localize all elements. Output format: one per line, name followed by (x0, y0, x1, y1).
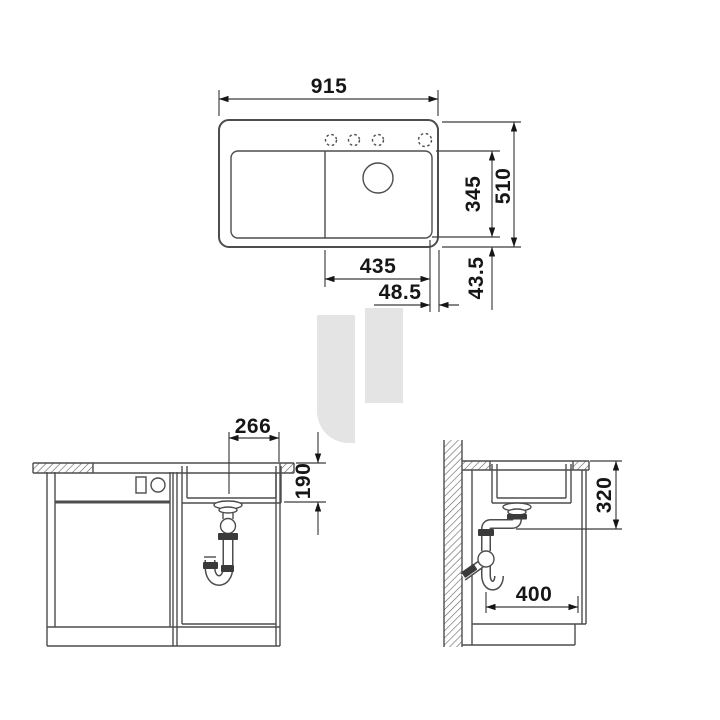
dim-rim-offset-vertical: 43.5 (465, 247, 492, 310)
countertop-front (33, 463, 294, 473)
trap-ball-joint-front (221, 519, 236, 534)
dim-overall-width: 915 (219, 75, 438, 116)
trap-nut (203, 562, 218, 569)
dim-label-rim-offset-horizontal: 48.5 (379, 281, 422, 304)
control-knob (151, 478, 165, 492)
dim-rim-offset-horizontal: 48.5 (374, 281, 459, 305)
watermark-shape-right (365, 308, 403, 403)
control-switch (136, 477, 146, 493)
trap-nut (507, 514, 527, 520)
drain-hole (363, 163, 393, 193)
bowl-section-front (182, 466, 281, 503)
plan-view: 915 510 345 43.5 435 (219, 75, 521, 312)
bowl-outline (231, 151, 432, 238)
tap-hole-2 (349, 135, 360, 146)
dim-label-overall-depth: 510 (492, 168, 515, 205)
countertop-side (462, 461, 589, 470)
dim-label-side-bowl-depth: 320 (593, 477, 616, 514)
dim-label-bowl-depth: 345 (462, 176, 485, 213)
trap-nut (478, 529, 494, 536)
dim-label-bowl-width: 435 (360, 255, 397, 278)
trap-nut (218, 533, 238, 540)
dim-side-bowl-depth: 320 (516, 461, 622, 529)
dim-label-side-bowl-base-length: 400 (516, 583, 553, 606)
sink-outline (219, 120, 438, 247)
wall-hatch (444, 440, 462, 647)
countertop-hatch-wall-side (462, 461, 490, 470)
dim-bowl-depth: 345 (462, 151, 492, 237)
tap-hole-4 (419, 134, 432, 147)
dim-overall-depth: 510 (492, 122, 515, 247)
tap-hole-1 (326, 135, 337, 146)
front-section-view: 266 190 (33, 415, 326, 646)
technical-drawing-page: 915 510 345 43.5 435 (0, 0, 720, 720)
watermark-shape-left (317, 315, 355, 443)
side-section-view: 320 400 (444, 440, 622, 647)
sink-technical-drawing: 915 510 345 43.5 435 (0, 0, 720, 720)
trap-nut (221, 565, 234, 572)
drain-trap-front (203, 501, 242, 581)
dim-bowl-width: 435 (325, 255, 430, 279)
dim-front-bowl-depth: 190 (284, 432, 326, 535)
dim-label-front-bowl-width: 266 (235, 415, 272, 438)
dim-label-front-bowl-depth: 190 (292, 463, 315, 500)
dim-label-overall-width: 915 (311, 75, 348, 98)
wall-section (444, 440, 462, 647)
countertop-hatch-left (33, 463, 93, 473)
tap-holes (326, 134, 432, 147)
dim-front-bowl-width: 266 (229, 415, 279, 494)
countertop-hatch-front-side (573, 461, 589, 470)
tap-hole-3 (373, 135, 384, 146)
trap-ball-joint-side (478, 551, 494, 567)
dim-label-rim-offset-vertical: 43.5 (465, 257, 488, 300)
brand-watermark (317, 308, 403, 443)
